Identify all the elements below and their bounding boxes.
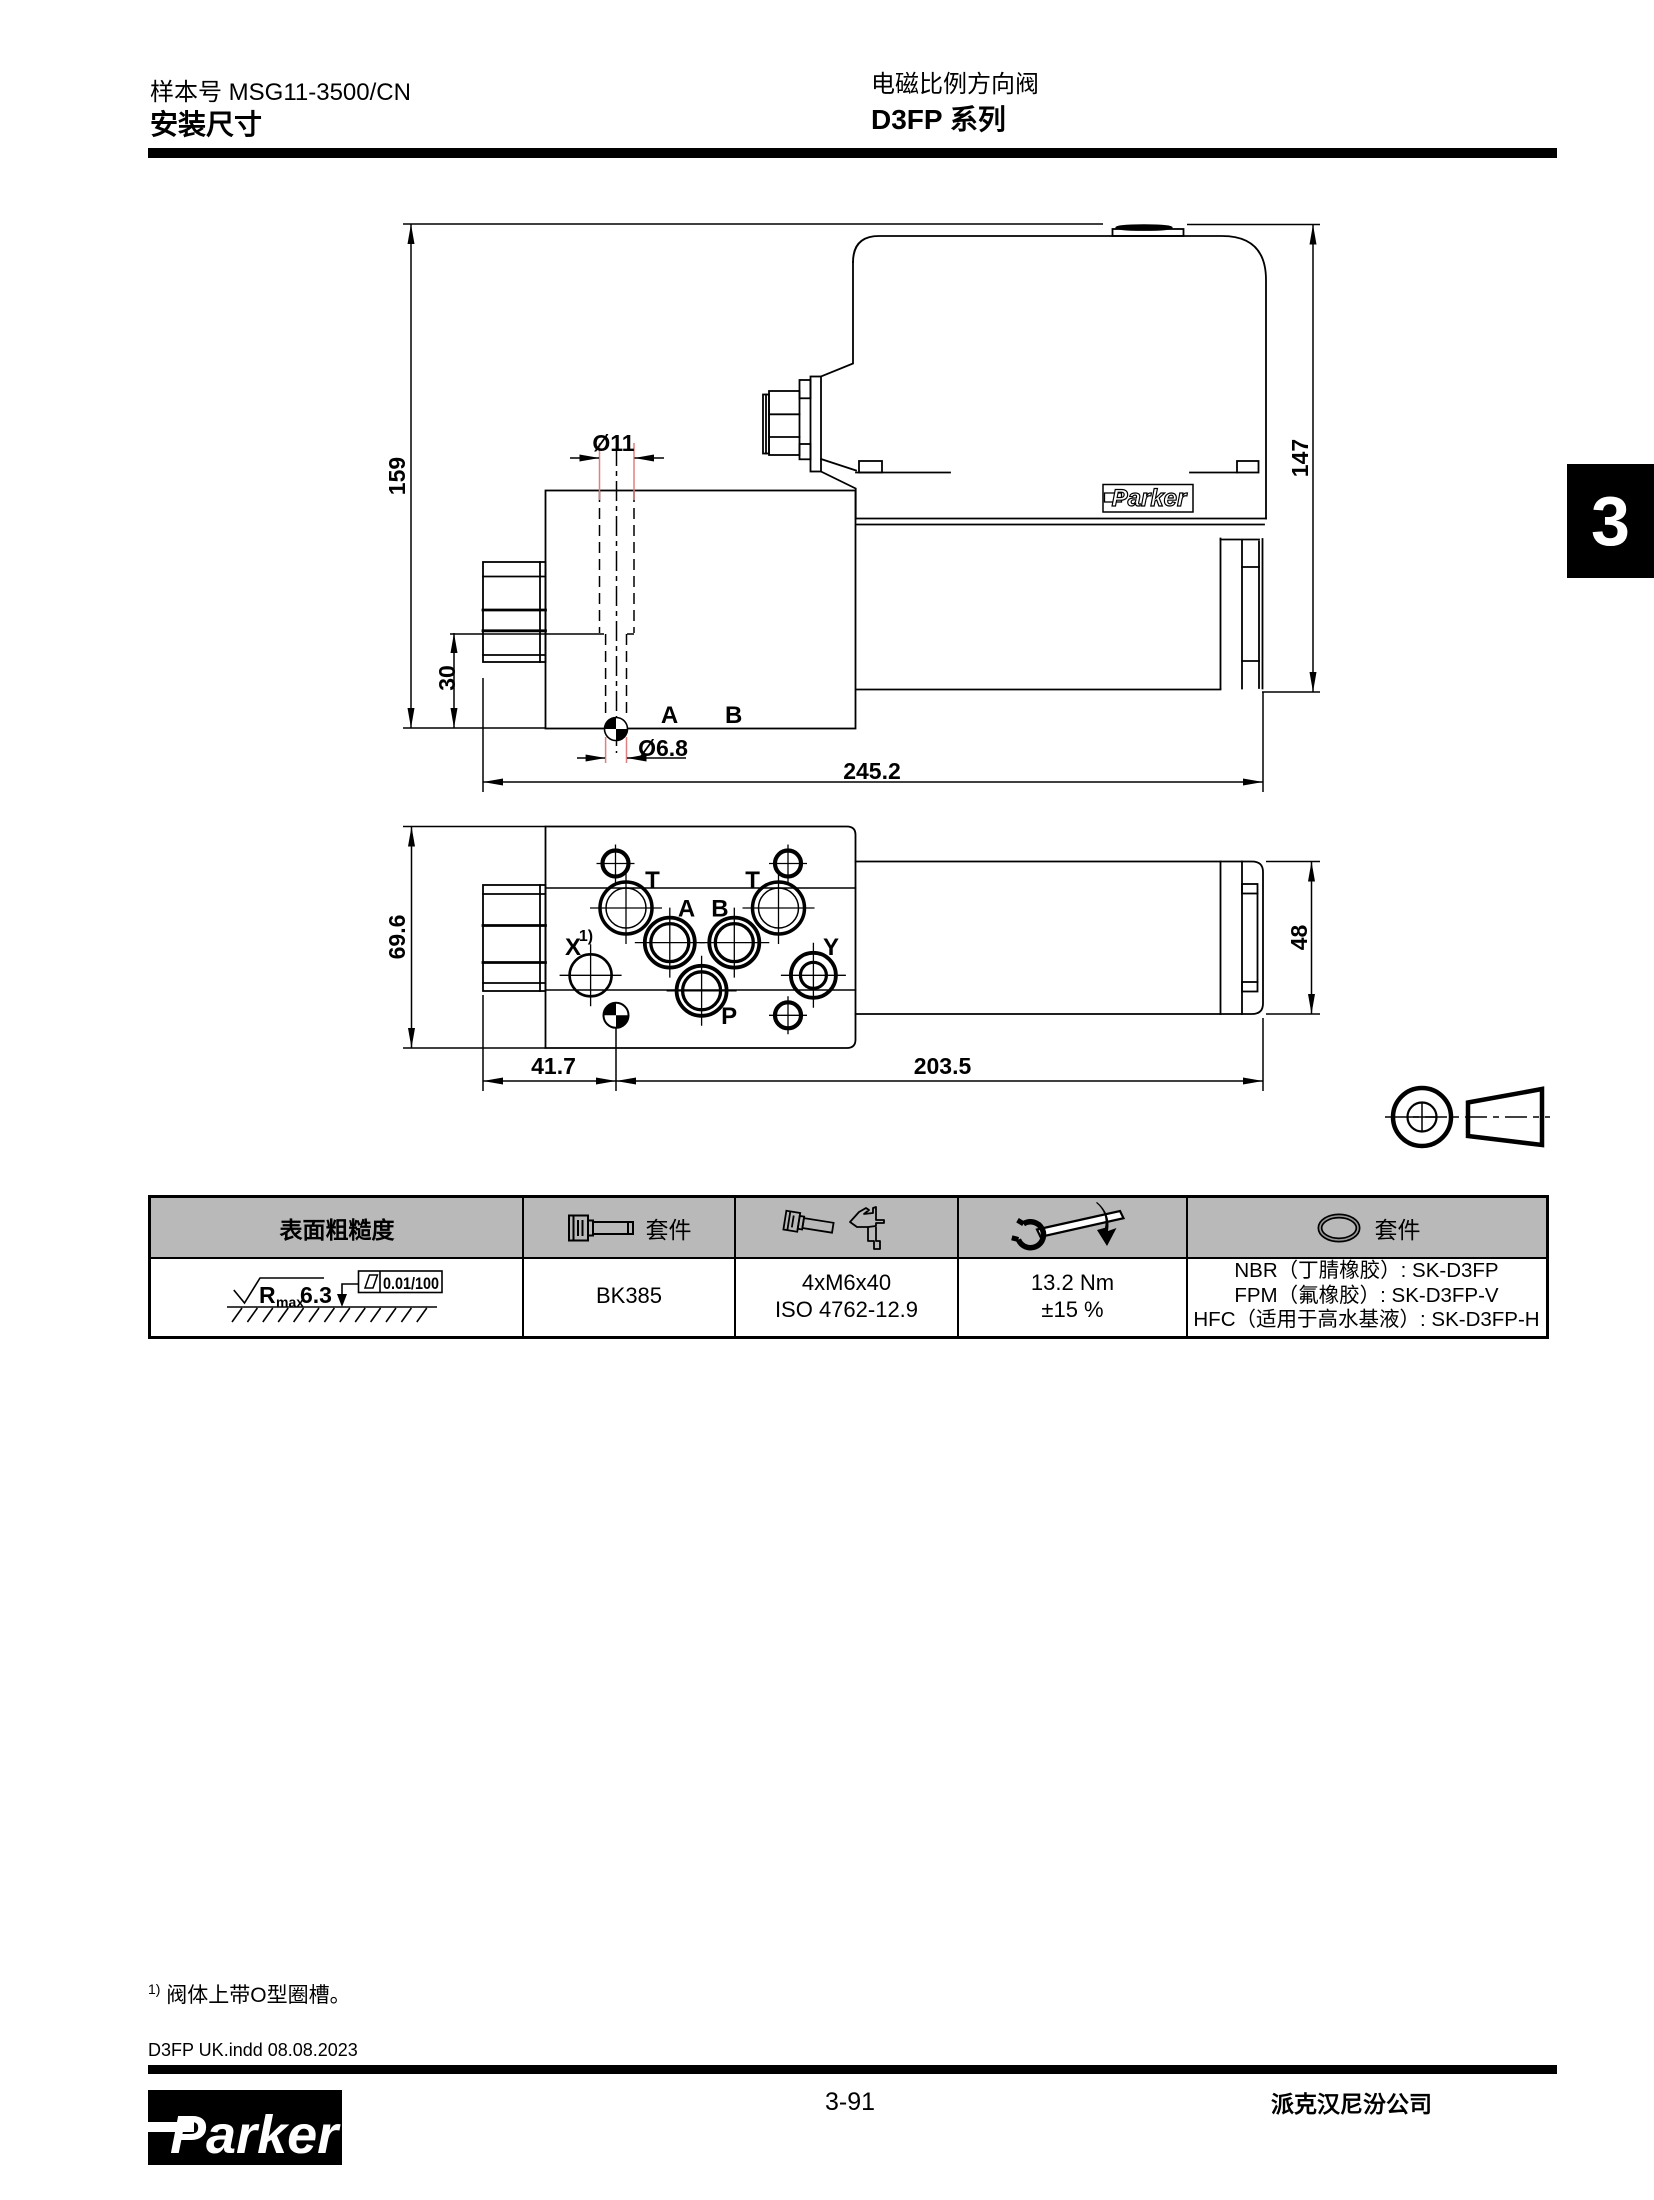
svg-text:T: T	[745, 867, 760, 894]
svg-text:41.7: 41.7	[531, 1053, 576, 1079]
svg-text:1): 1)	[579, 928, 593, 945]
svg-text:147: 147	[1287, 439, 1313, 477]
svg-text:B: B	[711, 896, 728, 923]
svg-text:0.01/100: 0.01/100	[383, 1274, 439, 1293]
svg-text:Parker: Parker	[170, 2105, 341, 2165]
svg-text:A: A	[678, 896, 695, 923]
svg-text:6.3: 6.3	[300, 1282, 332, 1308]
svg-text:159: 159	[384, 457, 410, 495]
svg-text:203.5: 203.5	[914, 1053, 972, 1079]
svg-text:30: 30	[434, 665, 460, 691]
svg-text:69.6: 69.6	[384, 915, 410, 960]
svg-text:48: 48	[1286, 925, 1312, 951]
svg-text:P: P	[721, 1003, 737, 1030]
svg-text:245.2: 245.2	[843, 758, 901, 784]
svg-text:Ø6.8: Ø6.8	[638, 735, 688, 761]
svg-text:Parker: Parker	[1112, 485, 1188, 512]
svg-text:R: R	[259, 1282, 276, 1308]
svg-text:T: T	[645, 867, 660, 894]
svg-text:A: A	[661, 702, 678, 729]
svg-text:Ø11: Ø11	[592, 430, 634, 456]
svg-text:B: B	[725, 702, 742, 729]
svg-text:Y: Y	[823, 934, 839, 961]
